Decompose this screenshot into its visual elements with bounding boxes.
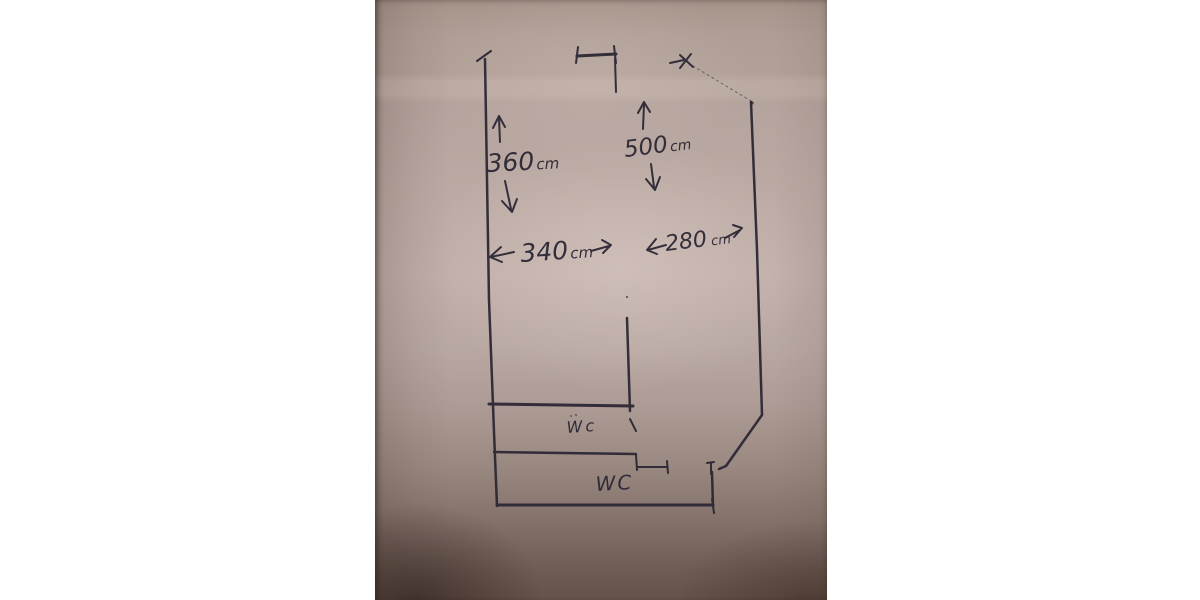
interior-wall-vertical — [627, 318, 630, 411]
dimension-value: 280 — [664, 227, 709, 257]
faint-corner-line — [693, 66, 751, 101]
interior-wall-hook — [630, 419, 636, 431]
paper-photo: 360cm 500cm 340cm 280cm Wc WC — [375, 0, 827, 600]
dimension-label-280: 280cm — [664, 224, 732, 257]
dimension-value: 500 — [623, 132, 670, 163]
dimension-value: 360 — [486, 147, 535, 178]
ink-strokes — [477, 46, 762, 513]
entry-stub-wall — [615, 58, 616, 92]
wc-door-tick-right — [667, 461, 668, 473]
interior-wall-wc-lower — [494, 452, 636, 454]
dimension-label-500: 500cm — [623, 129, 693, 163]
corner-mark-shaft — [670, 60, 684, 63]
dimension-label-340: 340cm — [519, 234, 593, 268]
room-label-wc-upper: Wc — [566, 416, 598, 437]
screenshot-canvas: 360cm 500cm 340cm 280cm Wc WC — [0, 0, 1200, 600]
arrow-up-icon — [638, 102, 650, 129]
dimension-unit: cm — [669, 137, 692, 155]
wall-right — [751, 102, 762, 415]
arrow-down-icon — [502, 181, 517, 212]
wc-door-tick-left — [636, 455, 637, 470]
ink-dot — [570, 415, 572, 417]
arrow-left-icon — [490, 247, 514, 262]
arrow-right-icon — [591, 240, 611, 253]
wall-chamfer-diagonal — [719, 415, 762, 469]
dimension-unit: cm — [570, 243, 594, 263]
top-opening-bar — [577, 54, 616, 56]
interior-wall-wc-upper — [489, 404, 633, 406]
floor-plan-sketch: 360cm 500cm 340cm 280cm Wc WC — [375, 0, 827, 600]
wall-left — [485, 59, 497, 506]
labels: 360cm 500cm 340cm 280cm Wc WC — [486, 129, 732, 496]
dimension-label-360: 360cm — [486, 145, 560, 178]
arrow-down-icon — [646, 164, 660, 190]
dimension-unit: cm — [710, 232, 731, 249]
ink-dot — [575, 414, 577, 416]
ink-dot — [626, 296, 628, 298]
dimension-value: 340 — [519, 236, 569, 268]
ink-dot — [750, 101, 753, 104]
dimension-unit: cm — [536, 154, 560, 173]
arrow-left-icon — [647, 239, 666, 254]
arrow-up-icon — [493, 116, 505, 142]
room-label-wc-lower: WC — [595, 470, 634, 496]
top-opening-tick-left — [576, 47, 578, 63]
